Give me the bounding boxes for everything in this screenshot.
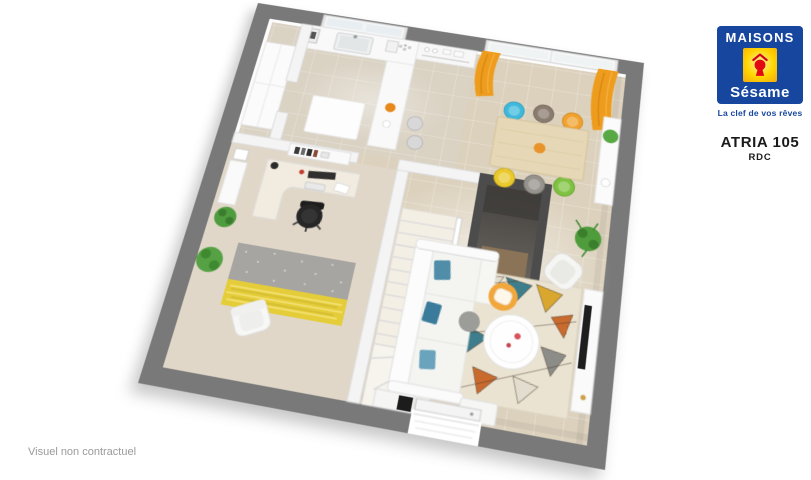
brand-name-script: Sésame bbox=[730, 85, 790, 100]
floor-label: RDC bbox=[702, 152, 811, 163]
keyhole-badge bbox=[743, 48, 777, 82]
brand-name-top: MAISONS bbox=[725, 31, 794, 44]
model-title: ATRIA 105 bbox=[702, 134, 811, 151]
small-appliance bbox=[385, 40, 398, 52]
logo-box: MAISONS Sésame bbox=[717, 26, 803, 104]
disclaimer-text: Visuel non contractuel bbox=[28, 446, 136, 458]
keyhole-icon bbox=[745, 50, 775, 80]
floorplan-3d-render bbox=[138, 3, 644, 470]
brand-column: MAISONS Sésame La clef de vos rêves ATRI… bbox=[702, 26, 811, 163]
flyer-page: { "logo": { "brand_line1": "MAISONS", "b… bbox=[0, 0, 811, 480]
logo-tagline: La clef de vos rêves bbox=[702, 108, 811, 118]
picture-frame bbox=[233, 148, 249, 160]
doormat bbox=[396, 395, 413, 412]
pillow bbox=[419, 350, 436, 370]
pillow bbox=[434, 260, 451, 280]
